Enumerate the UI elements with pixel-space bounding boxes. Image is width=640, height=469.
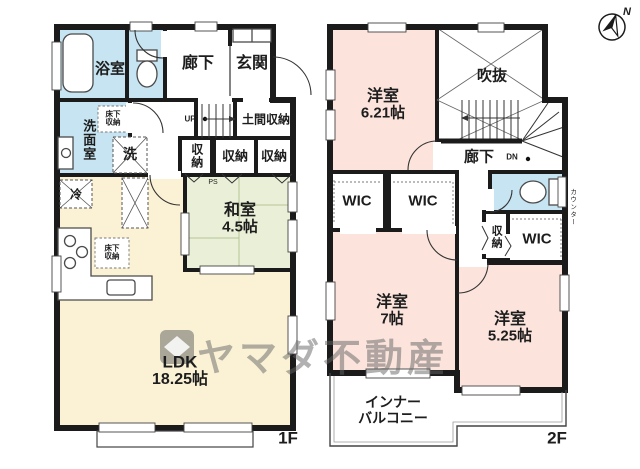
label-floor2: 2F (547, 428, 567, 447)
label-washroom: 洗面室 (81, 119, 96, 161)
label-closet-c: 収納 (261, 150, 287, 165)
label-counter: カウンター (568, 188, 575, 226)
label-pipe-space: PS (208, 179, 217, 187)
label-laundry: 洗 (123, 147, 137, 163)
label-fridge: 冷 (70, 188, 82, 201)
label-entrance: 玄関 (236, 55, 268, 73)
label-stairs-up: UP (184, 116, 195, 125)
label-underfloor-storage-kitchen: 床下収納 (104, 245, 121, 262)
label-wic-a: WIC (342, 194, 371, 211)
label-bedroom1-name: 洋室 (367, 88, 399, 106)
label-underfloor-storage-wash: 床下収納 (105, 111, 122, 128)
label-closet-a: 収納 (189, 143, 202, 169)
label-bedroom2-name: 洋室 (376, 294, 408, 312)
label-wic-c: WIC (522, 232, 551, 249)
label-stairs-down: DN (506, 154, 518, 163)
label-bedroom3-size: 5.25帖 (488, 329, 532, 346)
label-ldk-name: LDK (163, 352, 198, 371)
label-washitsu-name: 和室 (224, 202, 256, 220)
label-layer: 浴室 廊下 玄関 洗面室 床下収納 洗 UP 土間収納 収納 収納 収納 PS … (0, 0, 640, 469)
label-inner-balcony-1: インナー (365, 395, 421, 411)
label-inner-balcony-2: バルコニー (358, 411, 428, 427)
label-bedroom3-name: 洋室 (494, 311, 526, 329)
label-floor1: 1F (278, 428, 298, 447)
floorplan-image: 浴室 廊下 玄関 洗面室 床下収納 洗 UP 土間収納 収納 収納 収納 PS … (0, 0, 640, 469)
label-closet-d: 収納 (490, 225, 502, 249)
label-wic-b: WIC (408, 194, 437, 211)
watermark-text: ヤマダ不動産 (197, 327, 449, 382)
label-closet-b: 収納 (222, 150, 248, 165)
label-bedroom1-size: 6.21帖 (361, 106, 405, 123)
label-bedroom2-size: 7帖 (380, 312, 403, 329)
label-bath: 浴室 (95, 62, 125, 79)
label-hallway-1f: 廊下 (182, 55, 214, 73)
compass-north-label: N (623, 6, 631, 18)
label-hallway-2f: 廊下 (464, 150, 494, 167)
label-washitsu-size: 4.5帖 (222, 220, 258, 237)
label-doma-storage: 土間収納 (242, 113, 290, 126)
label-void: 吹抜 (477, 69, 507, 86)
